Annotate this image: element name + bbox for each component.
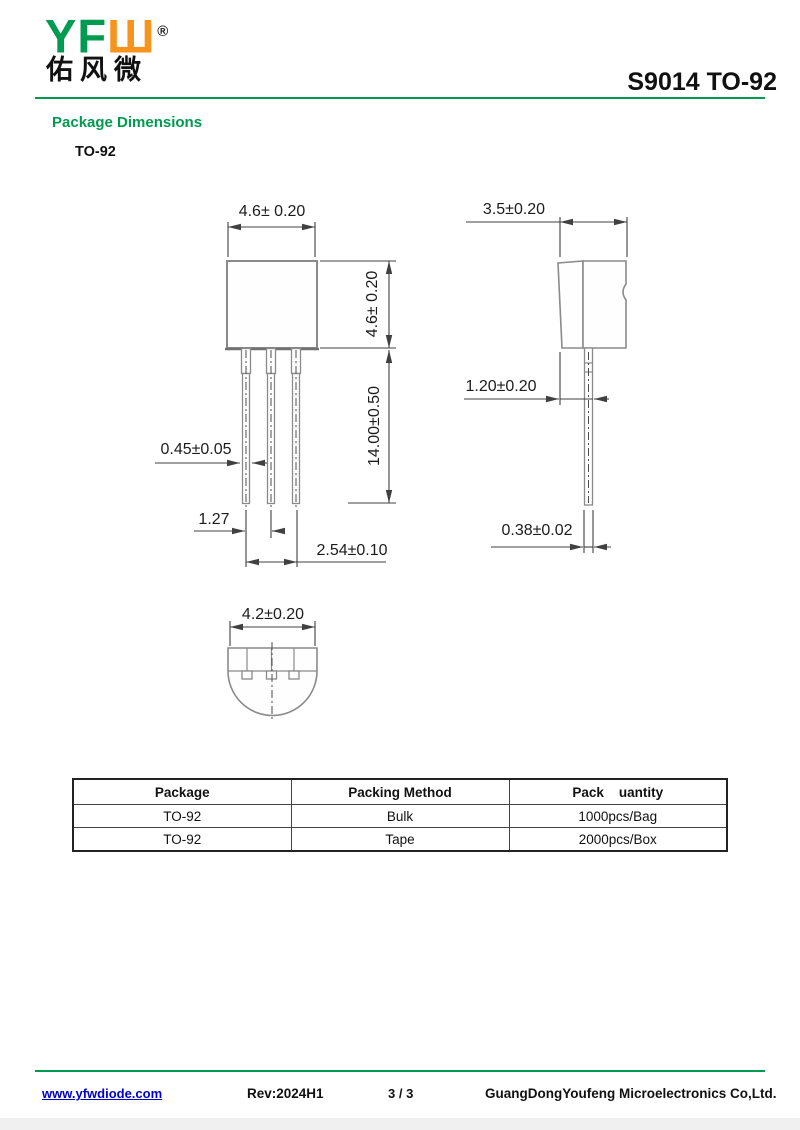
table-row: TO-92 Tape 2000pcs/Box bbox=[73, 828, 727, 852]
dim-lead-width: 0.45±0.05 bbox=[160, 442, 231, 458]
revision-label: Rev:2024H1 bbox=[247, 1086, 324, 1101]
cell-package: TO-92 bbox=[73, 828, 291, 852]
footer-divider bbox=[35, 1070, 765, 1072]
dim-lead-length: 14.00±0.50 bbox=[367, 386, 383, 466]
col-header-pack-quantity: Pack uantity bbox=[509, 779, 727, 805]
table-header-row: Package Packing Method Pack uantity bbox=[73, 779, 727, 805]
cell-pack-quantity: 1000pcs/Bag bbox=[509, 805, 727, 828]
page-number: 3 / 3 bbox=[388, 1086, 413, 1101]
dim-lead-span: 2.54±0.10 bbox=[316, 543, 387, 559]
col-header-package: Package bbox=[73, 779, 291, 805]
dim-lead-offset: 1.20±0.20 bbox=[465, 379, 536, 395]
packing-table: Package Packing Method Pack uantity TO-9… bbox=[72, 778, 728, 852]
dim-front-body-height: 4.6± 0.20 bbox=[365, 271, 381, 338]
to92-package-drawing bbox=[0, 0, 800, 760]
col-header-packing-method: Packing Method bbox=[291, 779, 509, 805]
datasheet-page: YFШ® 佑风微 S9014 TO-92 Package Dimensions … bbox=[0, 0, 800, 1130]
cell-pack-quantity: 2000pcs/Box bbox=[509, 828, 727, 852]
dim-front-body-width: 4.6± 0.20 bbox=[239, 204, 306, 220]
cell-package: TO-92 bbox=[73, 805, 291, 828]
cell-packing-method: Tape bbox=[291, 828, 509, 852]
company-name: GuangDongYoufeng Microelectronics Co,Ltd… bbox=[485, 1086, 777, 1101]
website-link[interactable]: www.yfwdiode.com bbox=[42, 1086, 162, 1101]
dim-side-body-depth: 3.5±0.20 bbox=[483, 202, 545, 218]
bottom-view bbox=[228, 621, 317, 722]
page-bottom-edge bbox=[0, 1118, 800, 1130]
table-row: TO-92 Bulk 1000pcs/Bag bbox=[73, 805, 727, 828]
dim-lead-thickness: 0.38±0.02 bbox=[501, 523, 572, 539]
front-view bbox=[155, 222, 396, 567]
dim-bottom-body-width: 4.2±0.20 bbox=[242, 607, 304, 623]
dim-lead-pitch: 1.27 bbox=[198, 512, 229, 528]
cell-packing-method: Bulk bbox=[291, 805, 509, 828]
